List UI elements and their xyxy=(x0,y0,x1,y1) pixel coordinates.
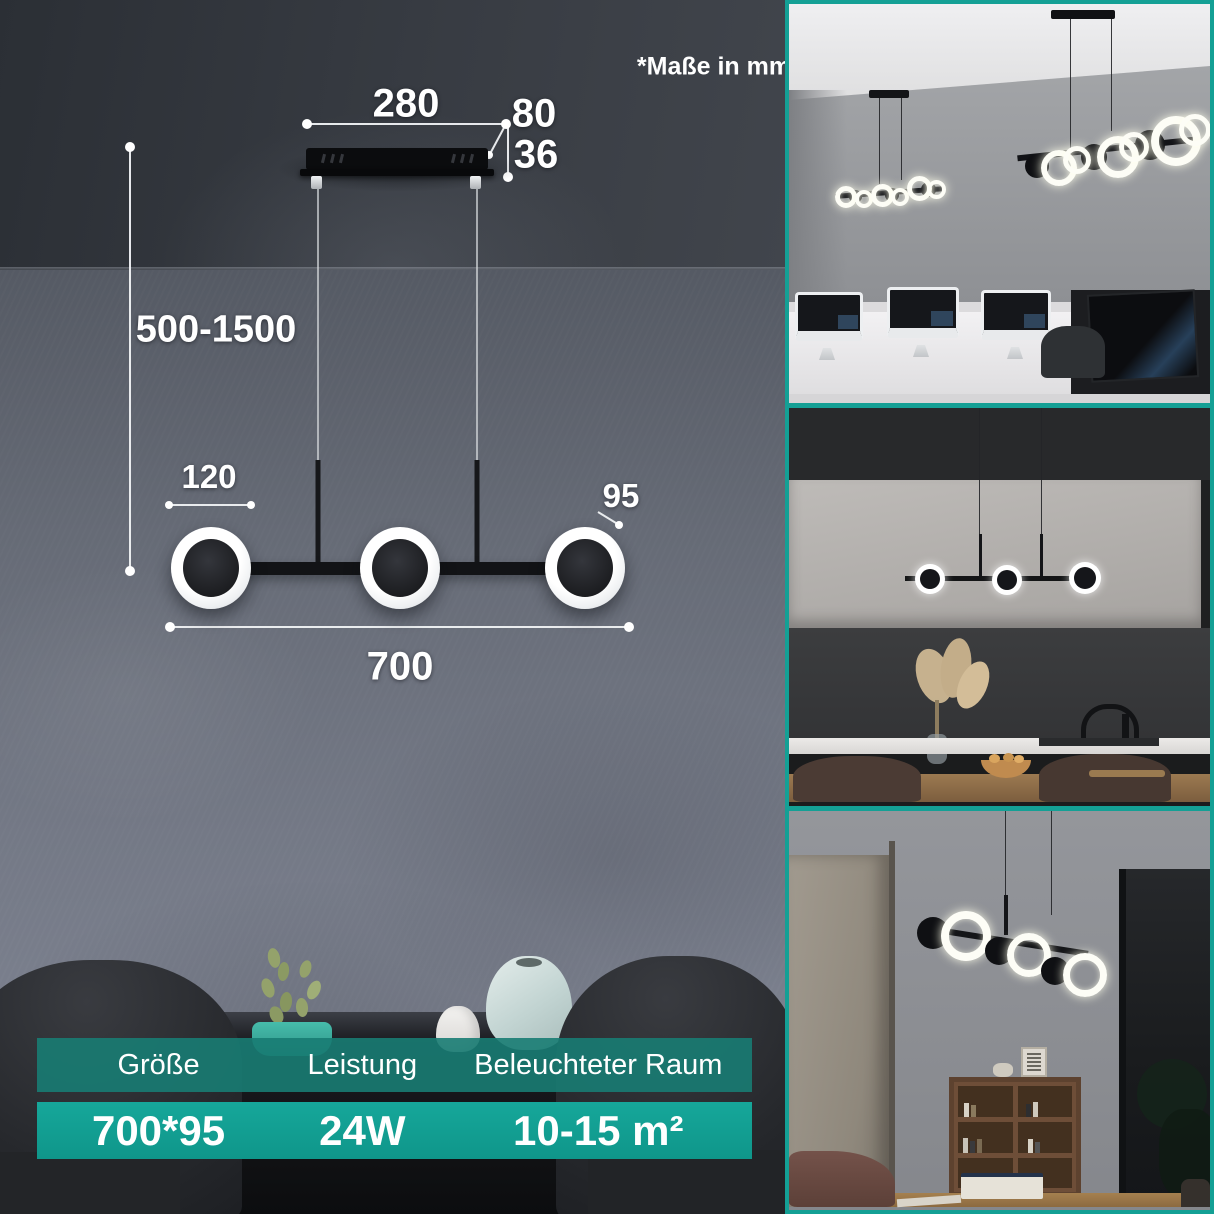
chair-seat-left xyxy=(0,1152,180,1214)
lamp-head-middle xyxy=(360,527,440,609)
picture-frame xyxy=(1021,1047,1047,1077)
photo-study-scene xyxy=(789,811,1210,1210)
spec-header-power: Leistung xyxy=(280,1049,444,1082)
desk-front-strip xyxy=(789,394,1210,403)
chair-seat-right xyxy=(588,1150,785,1214)
cable-connector-right xyxy=(470,176,481,189)
pendant-canopy-small xyxy=(869,90,909,98)
spec-header-size: Größe xyxy=(37,1049,280,1082)
book-stack xyxy=(961,1173,1043,1199)
sink-recess xyxy=(1039,738,1159,746)
photo-column xyxy=(785,0,1214,1214)
backsplash xyxy=(789,628,1210,740)
door-frame xyxy=(889,841,895,1207)
dim-label-cable-range: 500-1500 xyxy=(136,309,297,352)
product-infographic: *Maße in mm 280 80 36 500-1500 120 95 70… xyxy=(0,0,1214,1214)
ceiling-mount xyxy=(306,148,488,170)
dim-label-fixture-length: 700 xyxy=(367,645,434,690)
kitchen-chair-left xyxy=(793,756,921,802)
kitchen-lamp-head-3 xyxy=(1069,562,1101,594)
shelf-decor xyxy=(993,1063,1013,1077)
cable-connector-left xyxy=(311,176,322,189)
dim-label-mount-depth: 80 xyxy=(512,92,557,137)
photo-kitchen-scene xyxy=(789,408,1210,807)
dim-label-head-diameter: 120 xyxy=(181,458,236,496)
spec-table-values: 700*95 24W 10-15 m² xyxy=(37,1102,752,1159)
imac-3 xyxy=(981,290,1051,340)
pendant-canopy-large xyxy=(1051,10,1115,19)
imac-1 xyxy=(795,292,863,341)
imac-2 xyxy=(887,287,959,338)
kitchen-top-wall xyxy=(789,408,1210,480)
cutting-board xyxy=(1089,770,1165,777)
kitchen-chair-right xyxy=(1039,754,1171,802)
lamp-head-right xyxy=(545,527,625,609)
window xyxy=(1119,869,1210,1207)
photo-office-scene xyxy=(789,4,1210,403)
office-chair xyxy=(1041,326,1105,378)
kitchen-lamp-head-2 xyxy=(992,565,1022,595)
ceiling-mount-base xyxy=(300,169,494,176)
cabinet-side-shadow xyxy=(1201,480,1210,628)
spec-value-room: 10-15 m² xyxy=(445,1107,752,1155)
side-chair xyxy=(1181,1179,1210,1207)
dim-label-head-size: 95 xyxy=(603,477,640,515)
dim-label-mount-height: 36 xyxy=(514,133,559,178)
ceiling xyxy=(0,0,785,270)
spec-value-size: 700*95 xyxy=(37,1107,280,1155)
spec-header-room: Beleuchteter Raum xyxy=(445,1049,752,1082)
lamp-head-left xyxy=(171,527,251,609)
dim-label-mount-width: 280 xyxy=(373,82,440,127)
spec-table-header: Größe Leistung Beleuchteter Raum xyxy=(37,1038,752,1092)
kitchen-lamp-head-1 xyxy=(915,564,945,594)
spec-value-power: 24W xyxy=(280,1107,444,1155)
units-note: *Maße in mm xyxy=(637,53,785,82)
dimension-diagram-panel: *Maße in mm 280 80 36 500-1500 120 95 70… xyxy=(0,0,785,1214)
kitchen-cabinet xyxy=(789,480,1201,628)
